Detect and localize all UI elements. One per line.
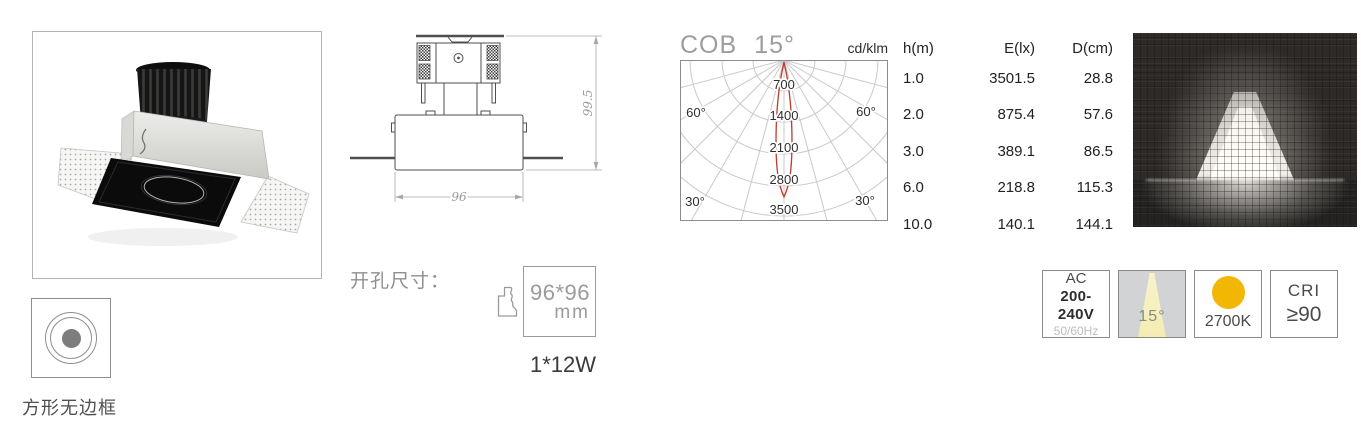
- inner-circle: [50, 317, 92, 359]
- power-type: AC: [1066, 270, 1087, 288]
- badge-cri: CRI ≥90: [1270, 270, 1338, 338]
- tile-grid-overlay: [1133, 33, 1357, 227]
- dimension-lines: [395, 36, 602, 202]
- cutout-size-label: 开孔尺寸：: [350, 266, 450, 293]
- spec-badges: AC 200-240V 50/60Hz 15° 2700K CRI ≥90: [1042, 270, 1338, 338]
- ring-label: 1400: [770, 108, 799, 123]
- photometric-unit: cd/klm: [810, 40, 888, 56]
- product-spec-sheet: 方形无边框: [0, 0, 1361, 434]
- polar-intensity-chart: 700 1400 2100 2800 3500 60° 60° 30° 30°: [680, 60, 888, 221]
- voltage-range: 200-240V: [1043, 288, 1109, 324]
- beam-effect-photo: [1133, 33, 1357, 227]
- ring-label: 700: [773, 77, 795, 92]
- height-dimension-label: 99.5: [581, 90, 595, 117]
- cob-label: COB: [680, 31, 737, 60]
- col-header-d: D(cm): [1035, 40, 1113, 57]
- body-side-face: [121, 111, 134, 164]
- cri-value: ≥90: [1287, 302, 1322, 327]
- dimension-drawing: 96 99.5: [350, 20, 610, 220]
- cell-h: 2.0: [903, 106, 945, 123]
- ring-label: 2800: [770, 172, 799, 187]
- beam-cone-icon: [1119, 271, 1185, 337]
- right-plaster-wing: [241, 176, 309, 233]
- cutout-size-unit: mm: [554, 302, 590, 324]
- angle-label-right-30: 30°: [855, 193, 875, 208]
- ring-label: 3500: [770, 202, 799, 217]
- fixture-outline: [350, 36, 563, 170]
- ring-label: 2100: [770, 140, 799, 155]
- col-header-h: h(m): [903, 40, 945, 57]
- warm-white-dot-icon: [1212, 276, 1245, 309]
- cell-h: 6.0: [903, 179, 945, 196]
- illuminance-table: h(m) E(lx) D(cm) 1.0 3501.5 28.8 2.0 875…: [903, 36, 1113, 243]
- cell-d: 115.3: [1035, 179, 1113, 196]
- angle-label-left-60: 60°: [686, 105, 706, 120]
- wattage-label: 1*12W: [530, 352, 596, 378]
- product-photo-frame: [32, 31, 322, 279]
- cell-e: 218.8: [945, 179, 1035, 196]
- product-caption: 方形无边框: [22, 394, 117, 420]
- cell-d: 57.6: [1035, 106, 1113, 123]
- cell-d: 86.5: [1035, 143, 1113, 160]
- beam-angle-label: 15°: [754, 31, 795, 60]
- angle-label-right-60: 60°: [856, 104, 876, 119]
- badge-beam-angle: 15°: [1118, 270, 1186, 338]
- cutout-size-box: 96*96 mm: [523, 266, 596, 337]
- angle-label-left-30: 30°: [685, 194, 705, 209]
- luminaire-photo: [33, 32, 321, 278]
- cct-value: 2700K: [1205, 312, 1251, 331]
- floor-shadow: [88, 228, 238, 246]
- col-header-e: E(lx): [945, 40, 1035, 57]
- photometric-title: COB 15°: [680, 31, 795, 60]
- cri-label: CRI: [1288, 281, 1320, 301]
- frequency: 50/60Hz: [1054, 324, 1099, 338]
- cell-e: 389.1: [945, 143, 1035, 160]
- cutout-hole-icon: [496, 284, 520, 324]
- outer-circle: [45, 312, 97, 364]
- cell-e: 3501.5: [945, 70, 1035, 87]
- cell-d: 28.8: [1035, 70, 1113, 87]
- badge-color-temperature: 2700K: [1194, 270, 1262, 338]
- cell-h: 10.0: [903, 216, 945, 233]
- badge-power: AC 200-240V 50/60Hz: [1042, 270, 1110, 338]
- cell-e: 875.4: [945, 106, 1035, 123]
- center-dot: [62, 329, 81, 348]
- cell-e: 140.1: [945, 216, 1035, 233]
- cell-h: 1.0: [903, 70, 945, 87]
- square-trimless-icon: [31, 298, 111, 378]
- beam-angle-value: 15°: [1138, 307, 1165, 326]
- cell-d: 144.1: [1035, 216, 1113, 233]
- width-dimension-label: 96: [451, 190, 467, 204]
- cell-h: 3.0: [903, 143, 945, 160]
